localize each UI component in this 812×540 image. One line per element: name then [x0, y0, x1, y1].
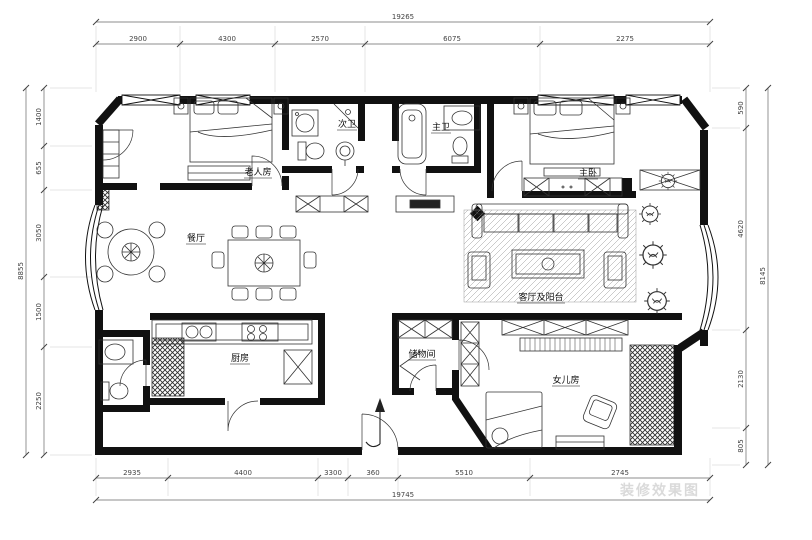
fridge-icon [284, 350, 312, 384]
furniture-layer [97, 98, 700, 450]
plant-icon [639, 241, 667, 269]
door-arc-storage [410, 365, 436, 391]
wall-left-upper [95, 125, 103, 205]
door-arc-kitchen [228, 401, 258, 431]
dim-top-seg: 4300 [218, 35, 236, 43]
door-arc-foyer [103, 130, 133, 160]
striped-cabinet-daughter-room [520, 338, 622, 351]
dim-right-seg: 805 [737, 439, 745, 452]
dim-left-seg: 2250 [35, 392, 43, 410]
kitchen-counter [152, 320, 312, 344]
bed-elder-room [174, 98, 288, 162]
wall-diagonal-daughter [455, 398, 490, 450]
window-icon [626, 95, 680, 105]
dim-left-seg: 3050 [35, 224, 43, 242]
dim-left-seg: 1500 [35, 303, 43, 321]
window-icon [538, 95, 614, 105]
wall-bottom-left [95, 447, 362, 455]
door-arc-daughter-room [459, 340, 489, 370]
bay-window-right [700, 225, 718, 330]
dim-top-seg: 6075 [443, 35, 461, 43]
dim-left-total: 8855 [17, 262, 25, 280]
window-seat-daughter-room [502, 320, 628, 335]
room-label-master-bathroom: 主卫 [432, 121, 450, 133]
dim-bottom-seg: 2935 [123, 469, 141, 477]
room-label-master-bedroom: 主卧 [579, 167, 597, 179]
entry-arrow-icon [366, 398, 385, 447]
dim-right-seg: 4620 [737, 220, 745, 238]
room-label-second-bathroom: 次卫 [338, 118, 356, 130]
bathtub-icon [398, 104, 426, 164]
room-label-storage-room: 储物间 [408, 348, 435, 360]
shoe-cabinet-foyer [103, 130, 119, 178]
wall-right-lower [674, 345, 682, 455]
dim-right-seg: 590 [737, 101, 745, 114]
dim-bottom-seg: 4400 [234, 469, 252, 477]
armchair-daughter-room [582, 394, 618, 430]
tv-cabinet [396, 196, 454, 212]
dim-left-seg: 1400 [35, 108, 43, 126]
dim-bottom-seg: 3300 [324, 469, 342, 477]
hall-cabinet [296, 196, 368, 212]
room-label-living-room: 客厅及阳台 [518, 291, 563, 303]
door-arc-master-bedroom [492, 161, 522, 191]
room-label-kitchen: 厨房 [231, 352, 249, 364]
sink-icon-small-bath [99, 340, 133, 364]
plant-icon [644, 288, 670, 314]
dim-top-seg: 2275 [616, 35, 634, 43]
dim-bottom-total: 19745 [392, 491, 414, 499]
hatch-area-bottom-right [630, 345, 674, 445]
watermark-text: 装修效果图 [619, 482, 700, 499]
bed-daughter-room [486, 392, 542, 448]
door-arc-master-bath [400, 169, 426, 195]
toilet-icon-master-bath [452, 137, 468, 163]
bed-master-bedroom [514, 98, 630, 176]
sink-icon-second-bath [336, 142, 354, 166]
dim-bottom-seg: 360 [366, 469, 379, 477]
floor-plan-canvas: 19265 2900 4300 2570 6075 2275 19745 293… [0, 0, 812, 540]
plant-icon [639, 203, 661, 225]
dim-bottom-seg: 5510 [455, 469, 473, 477]
room-label-daughter-room: 女儿房 [552, 374, 579, 386]
dim-right-total: 8145 [759, 267, 767, 285]
dim-bottom-seg: 2745 [611, 469, 629, 477]
room-label-elder-bedroom: 老人房 [244, 166, 271, 178]
closet-daughter-room [461, 322, 479, 386]
tea-table-set [97, 222, 165, 282]
dim-right-seg: 2130 [737, 370, 745, 388]
dim-left-seg: 655 [35, 161, 43, 174]
toilet-icon-second-bath [298, 142, 324, 160]
dim-top-seg: 2900 [129, 35, 147, 43]
window-icon [196, 95, 250, 105]
dresser-elder-room [188, 166, 250, 180]
dim-top-total: 19265 [392, 13, 414, 21]
hatch-area-kitchen-side [152, 338, 184, 396]
room-label-dining-room: 餐厅 [187, 232, 205, 244]
door-arc-second-bath [332, 169, 358, 195]
window-icon [122, 95, 180, 105]
bay-window-left [86, 205, 104, 310]
washing-machine-icon [292, 110, 318, 136]
dining-table-set [212, 226, 316, 300]
toilet-icon-small-bath [101, 382, 128, 400]
dim-top-seg: 2570 [311, 35, 329, 43]
wall-right-upper [700, 130, 708, 225]
